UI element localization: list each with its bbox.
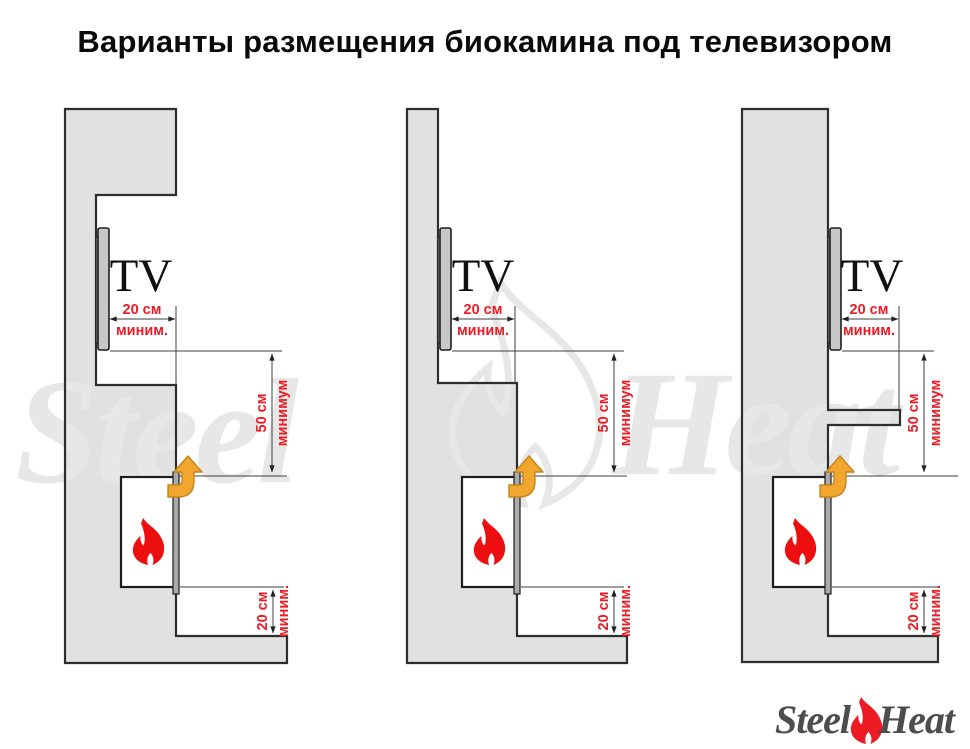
- brand-logo: Steel Heat: [775, 695, 954, 743]
- dim-qualifier: миним.: [843, 323, 895, 339]
- tv-screen: [440, 228, 451, 350]
- dim-value: 20 см: [123, 302, 162, 318]
- dim-qualifier: миним.: [457, 323, 509, 339]
- diagram-canvas: Steel Heat TV 20 см миним. 50 см минимум: [0, 0, 970, 749]
- dim-value: 50 см: [596, 394, 612, 433]
- infographic-page: Варианты размещения биокамина под телеви…: [0, 0, 970, 749]
- dim-qualifier: минимум: [275, 380, 291, 446]
- dim-qualifier: минимум: [618, 380, 634, 446]
- dim-qualifier: миним.: [276, 585, 292, 637]
- logo-heat: Heat: [878, 696, 954, 743]
- tv-label: TV: [110, 250, 173, 302]
- dim-value: 20 см: [596, 592, 612, 631]
- tv-label: TV: [841, 250, 904, 302]
- logo-steel: Steel: [775, 696, 850, 743]
- tv-label: TV: [452, 250, 515, 302]
- dim-qualifier: миним.: [116, 323, 168, 339]
- dim-value: 20 см: [464, 302, 503, 318]
- dim-qualifier: миним.: [618, 585, 634, 637]
- dim-value: 20 см: [906, 592, 922, 631]
- dim-value: 50 см: [906, 394, 922, 433]
- tv-screen: [98, 228, 109, 350]
- dim-qualifier: минимум: [928, 380, 944, 446]
- dim-qualifier: миним.: [928, 585, 944, 637]
- dim-value: 20 см: [255, 592, 271, 631]
- dim-value: 20 см: [850, 302, 889, 318]
- tv-screen: [830, 228, 841, 350]
- dim-value: 50 см: [254, 394, 270, 433]
